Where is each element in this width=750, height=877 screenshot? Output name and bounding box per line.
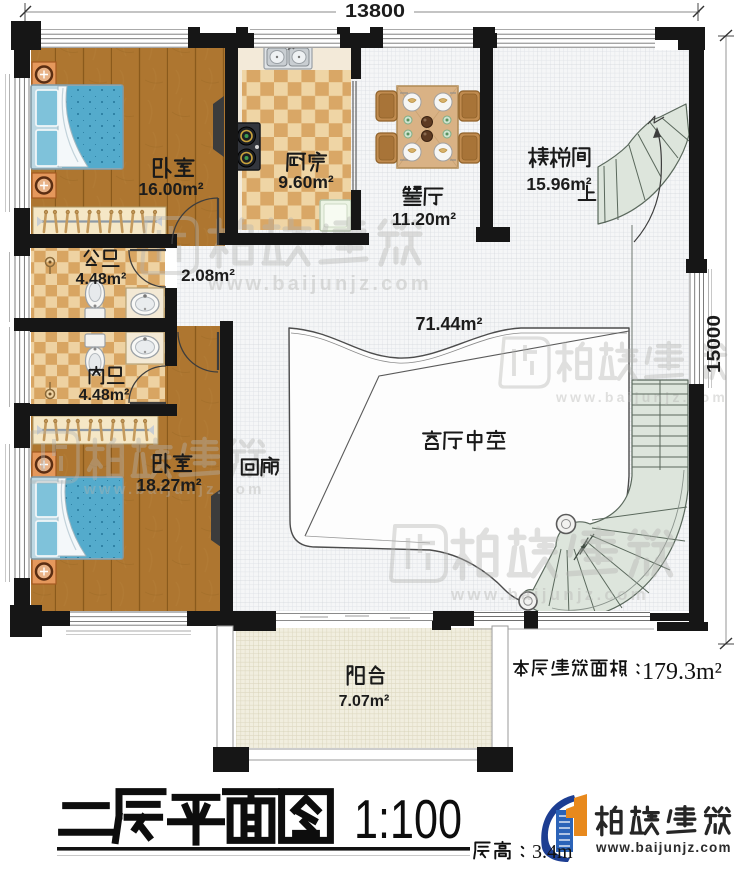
svg-text:15.96m²: 15.96m² bbox=[526, 174, 591, 194]
svg-text:18.27m²: 18.27m² bbox=[136, 475, 201, 495]
svg-text:www.baijunjz.com: www.baijunjz.com bbox=[450, 585, 649, 604]
svg-text:179.3m²: 179.3m² bbox=[642, 659, 722, 685]
svg-text:www.baijunjz.com: www.baijunjz.com bbox=[207, 273, 432, 295]
svg-text:9.60m²: 9.60m² bbox=[278, 172, 334, 192]
svg-text:7.07m²: 7.07m² bbox=[339, 693, 390, 710]
svg-text:15000: 15000 bbox=[703, 315, 724, 373]
svg-text:3.4m: 3.4m bbox=[532, 841, 573, 863]
svg-text:13800: 13800 bbox=[345, 0, 405, 21]
svg-text:71.44m²: 71.44m² bbox=[415, 314, 482, 334]
svg-text:4.48m²: 4.48m² bbox=[79, 387, 130, 404]
svg-text:www.baijunjz.com: www.baijunjz.com bbox=[595, 840, 732, 855]
svg-text:1:100: 1:100 bbox=[354, 788, 462, 850]
svg-text:16.00m²: 16.00m² bbox=[138, 179, 203, 199]
svg-text:11.20m²: 11.20m² bbox=[392, 209, 456, 229]
svg-text:4.48m²: 4.48m² bbox=[76, 271, 127, 288]
svg-text:2.08m²: 2.08m² bbox=[181, 266, 235, 285]
